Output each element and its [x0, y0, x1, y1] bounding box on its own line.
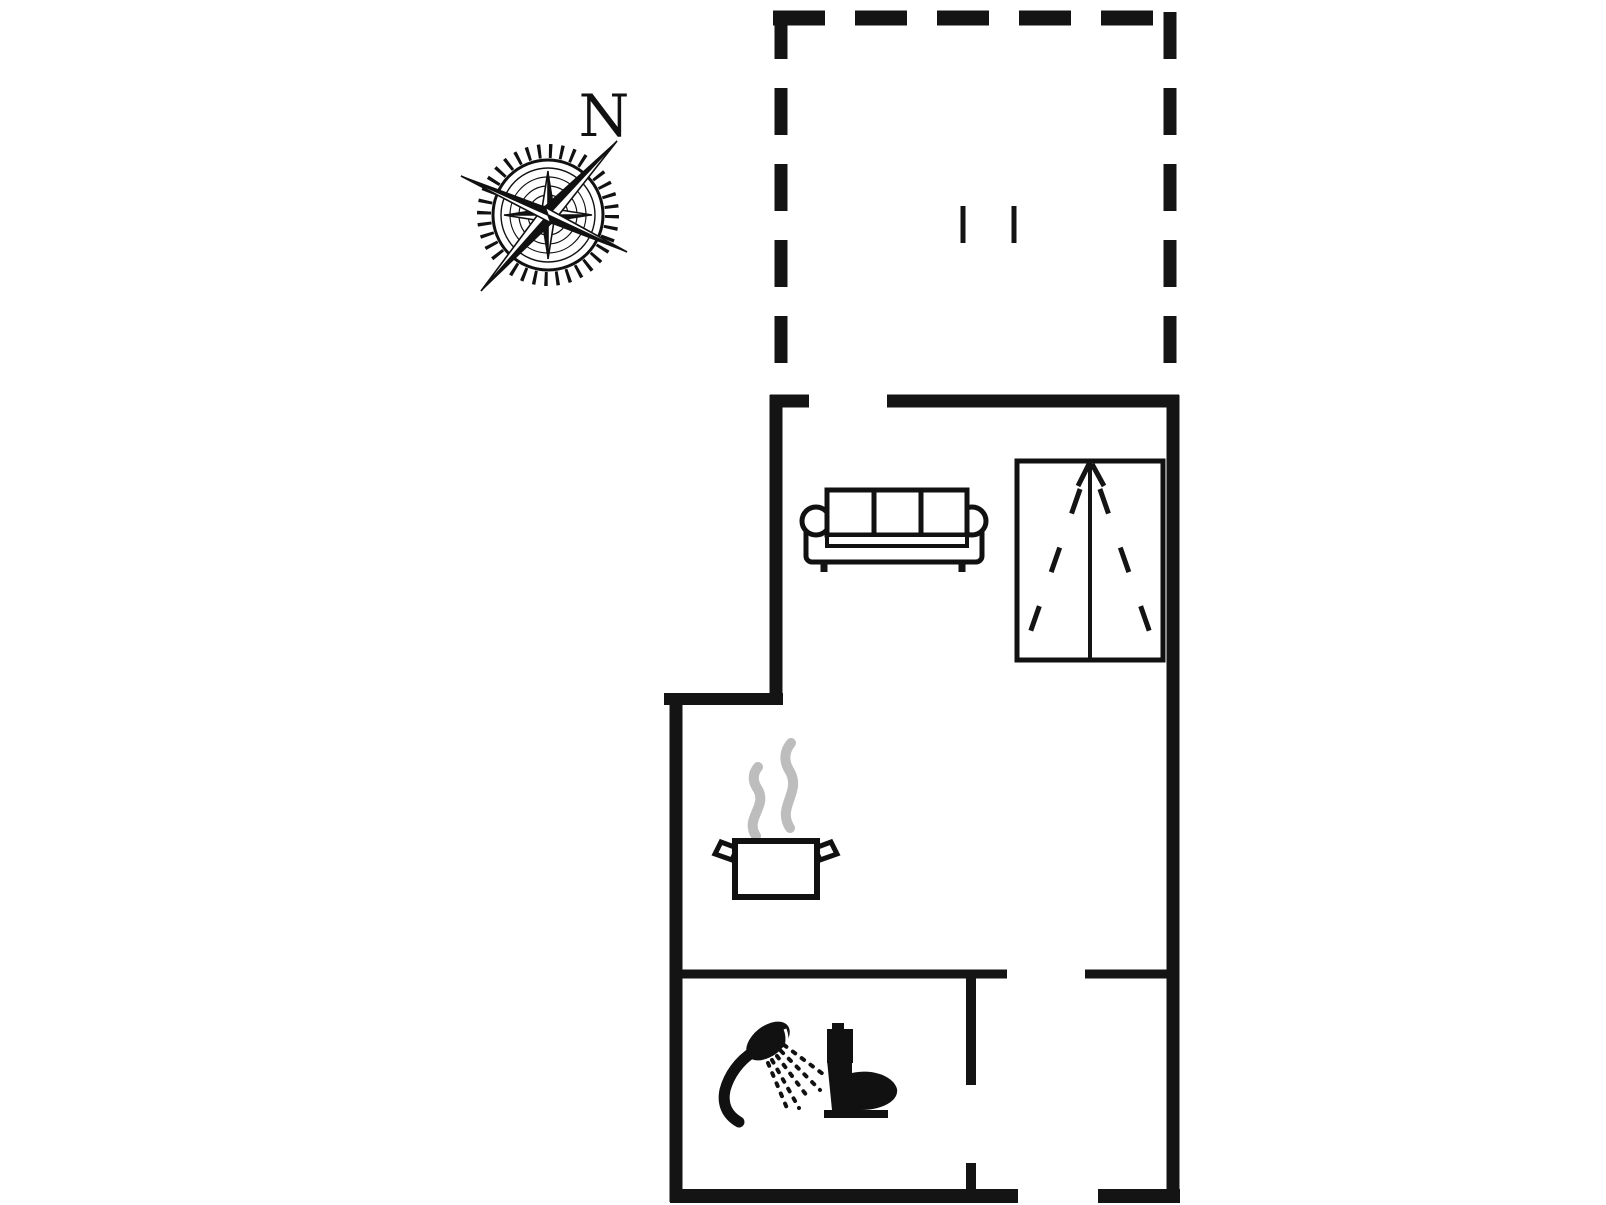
sofa-cushion-1	[827, 490, 874, 535]
toilet-icon	[824, 1023, 897, 1118]
interior-walls	[671, 970, 1179, 1196]
sofa-seat-band	[827, 535, 967, 546]
sofa-cushion-3	[921, 490, 967, 535]
steam-wisp-right	[785, 743, 793, 828]
shower-spray	[768, 1045, 827, 1113]
shower-icon	[724, 1014, 827, 1122]
steam-icon	[753, 743, 794, 836]
pot-body	[735, 841, 817, 897]
toilet-bowl	[827, 1060, 897, 1110]
north-label: N	[579, 82, 630, 150]
steam-wisp-left	[753, 767, 761, 836]
cooking-pot-icon	[715, 743, 837, 897]
sofa-cushion-2	[874, 490, 921, 535]
floor-plan-drawing: N	[0, 0, 1606, 1205]
toilet-tank	[827, 1029, 853, 1063]
floor-plan-canvas: N	[0, 0, 1606, 1205]
terrace-door-marks	[963, 206, 1014, 243]
compass-rose-icon	[461, 141, 627, 291]
wardrobe-icon	[1017, 461, 1163, 660]
sofa-icon	[802, 490, 986, 572]
shower-handle	[724, 1052, 753, 1122]
terrace-outline	[773, 12, 1178, 392]
toilet-base	[824, 1110, 888, 1118]
